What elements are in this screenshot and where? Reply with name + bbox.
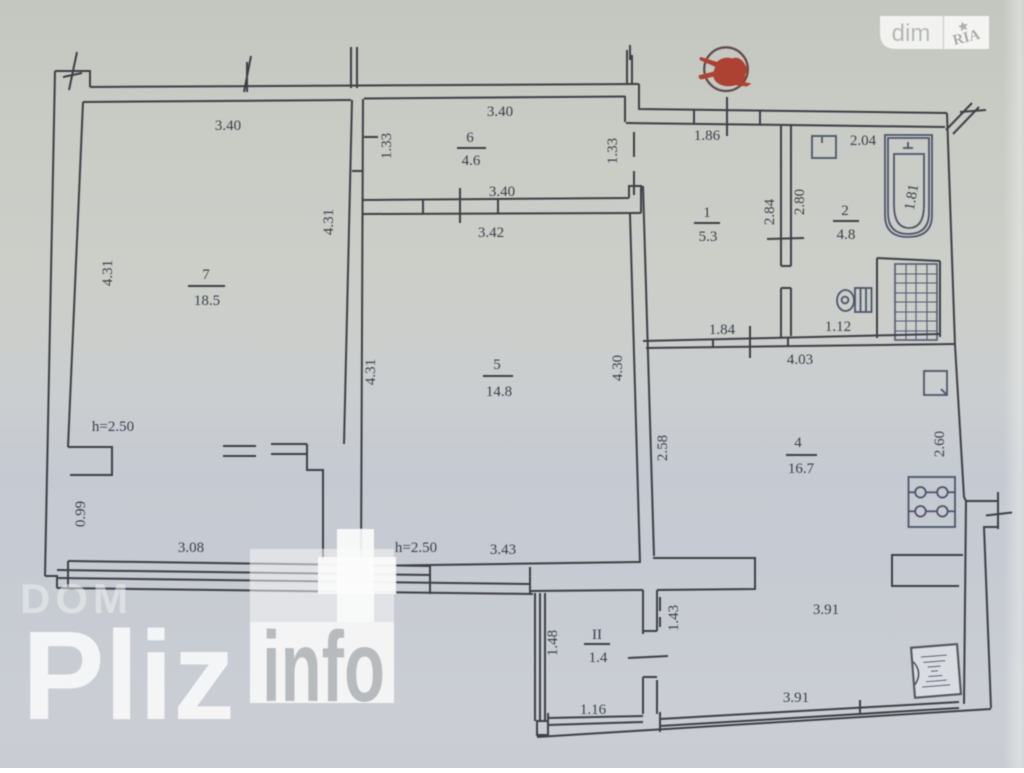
svg-text:2.04: 2.04	[850, 133, 877, 149]
svg-text:2: 2	[841, 203, 849, 219]
svg-text:4.6: 4.6	[462, 153, 481, 169]
svg-text:1.84: 1.84	[709, 322, 736, 338]
svg-text:1.12: 1.12	[825, 319, 851, 335]
svg-text:7: 7	[202, 267, 210, 283]
svg-text:3.40: 3.40	[215, 118, 241, 134]
svg-text:5.3: 5.3	[699, 229, 718, 245]
svg-text:16.7: 16.7	[788, 461, 815, 477]
svg-text:3.40: 3.40	[487, 104, 513, 120]
svg-text:h=2.50: h=2.50	[395, 540, 437, 556]
svg-text:dim: dim	[892, 20, 931, 47]
svg-text:3.40: 3.40	[489, 184, 515, 200]
svg-text:14.8: 14.8	[486, 384, 512, 400]
svg-text:info: info	[262, 611, 385, 723]
svg-text:3.08: 3.08	[178, 540, 204, 556]
svg-text:0.99: 0.99	[73, 501, 89, 527]
svg-text:18.5: 18.5	[194, 293, 220, 309]
svg-text:1.33: 1.33	[379, 133, 395, 159]
svg-text:4.8: 4.8	[837, 227, 856, 243]
svg-text:4.31: 4.31	[100, 260, 116, 286]
svg-text:1.43: 1.43	[666, 605, 682, 631]
svg-text:4.30: 4.30	[610, 355, 626, 381]
svg-text:2.84: 2.84	[762, 198, 778, 225]
svg-text:1.4: 1.4	[589, 650, 608, 666]
svg-text:Pliz: Pliz	[22, 605, 235, 746]
svg-text:2.80: 2.80	[792, 189, 808, 215]
svg-text:1.16: 1.16	[580, 702, 607, 718]
svg-text:4.03: 4.03	[787, 352, 813, 368]
svg-text:3.43: 3.43	[490, 542, 516, 558]
svg-text:1.48: 1.48	[545, 630, 561, 656]
svg-text:5: 5	[493, 357, 501, 373]
svg-text:II: II	[592, 627, 602, 643]
svg-text:3.91: 3.91	[813, 602, 839, 618]
svg-text:3.42: 3.42	[478, 225, 504, 241]
svg-text:1.86: 1.86	[694, 128, 721, 144]
svg-text:2.58: 2.58	[655, 435, 671, 461]
svg-text:4: 4	[794, 435, 802, 451]
svg-text:1.81: 1.81	[902, 183, 922, 212]
svg-text:3.91: 3.91	[783, 690, 809, 706]
svg-text:4.31: 4.31	[321, 209, 337, 235]
svg-text:1: 1	[703, 205, 711, 221]
svg-text:h=2.50: h=2.50	[92, 419, 134, 435]
svg-text:4.31: 4.31	[363, 359, 379, 385]
svg-text:1.33: 1.33	[605, 138, 621, 164]
svg-text:2.60: 2.60	[932, 431, 948, 457]
svg-text:6: 6	[466, 130, 474, 146]
